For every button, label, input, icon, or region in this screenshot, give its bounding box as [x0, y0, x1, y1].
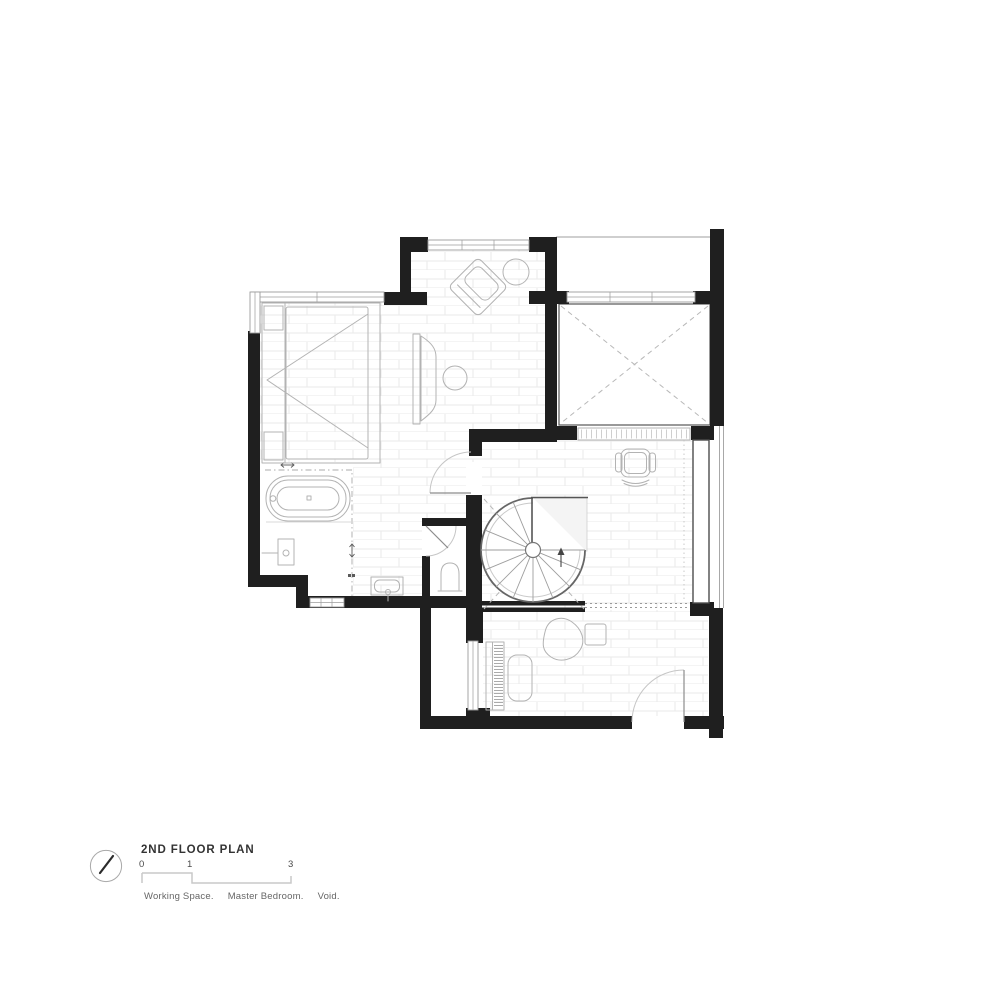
bathtub [266, 476, 350, 521]
stair-newel [526, 543, 541, 558]
window-void-top [567, 292, 695, 302]
void-area [559, 304, 710, 425]
north-arrow-icon [89, 849, 123, 883]
window-top-room [428, 240, 529, 250]
void-balustrade-shelf [578, 428, 690, 440]
window-bedroom-left [250, 292, 260, 333]
door-wc [426, 526, 456, 556]
hollow-wall [693, 440, 709, 603]
page-title: 2ND FLOOR PLAN [141, 844, 255, 856]
legend-item-working-space: Working Space. [144, 891, 214, 902]
legend: Working Space. Master Bedroom. Void. [144, 891, 340, 902]
bathtub-faucet [270, 496, 276, 502]
wall-basin [262, 539, 294, 565]
window-bottom-hatch [310, 598, 344, 607]
bathtub-drain [307, 496, 311, 500]
legend-item-void: Void. [318, 891, 340, 902]
window-bedroom-top [251, 292, 384, 302]
scale-bar [138, 866, 298, 888]
window-bottom-room-left [468, 641, 478, 710]
legend-item-master-bedroom: Master Bedroom. [228, 891, 304, 902]
toilet [438, 563, 462, 591]
